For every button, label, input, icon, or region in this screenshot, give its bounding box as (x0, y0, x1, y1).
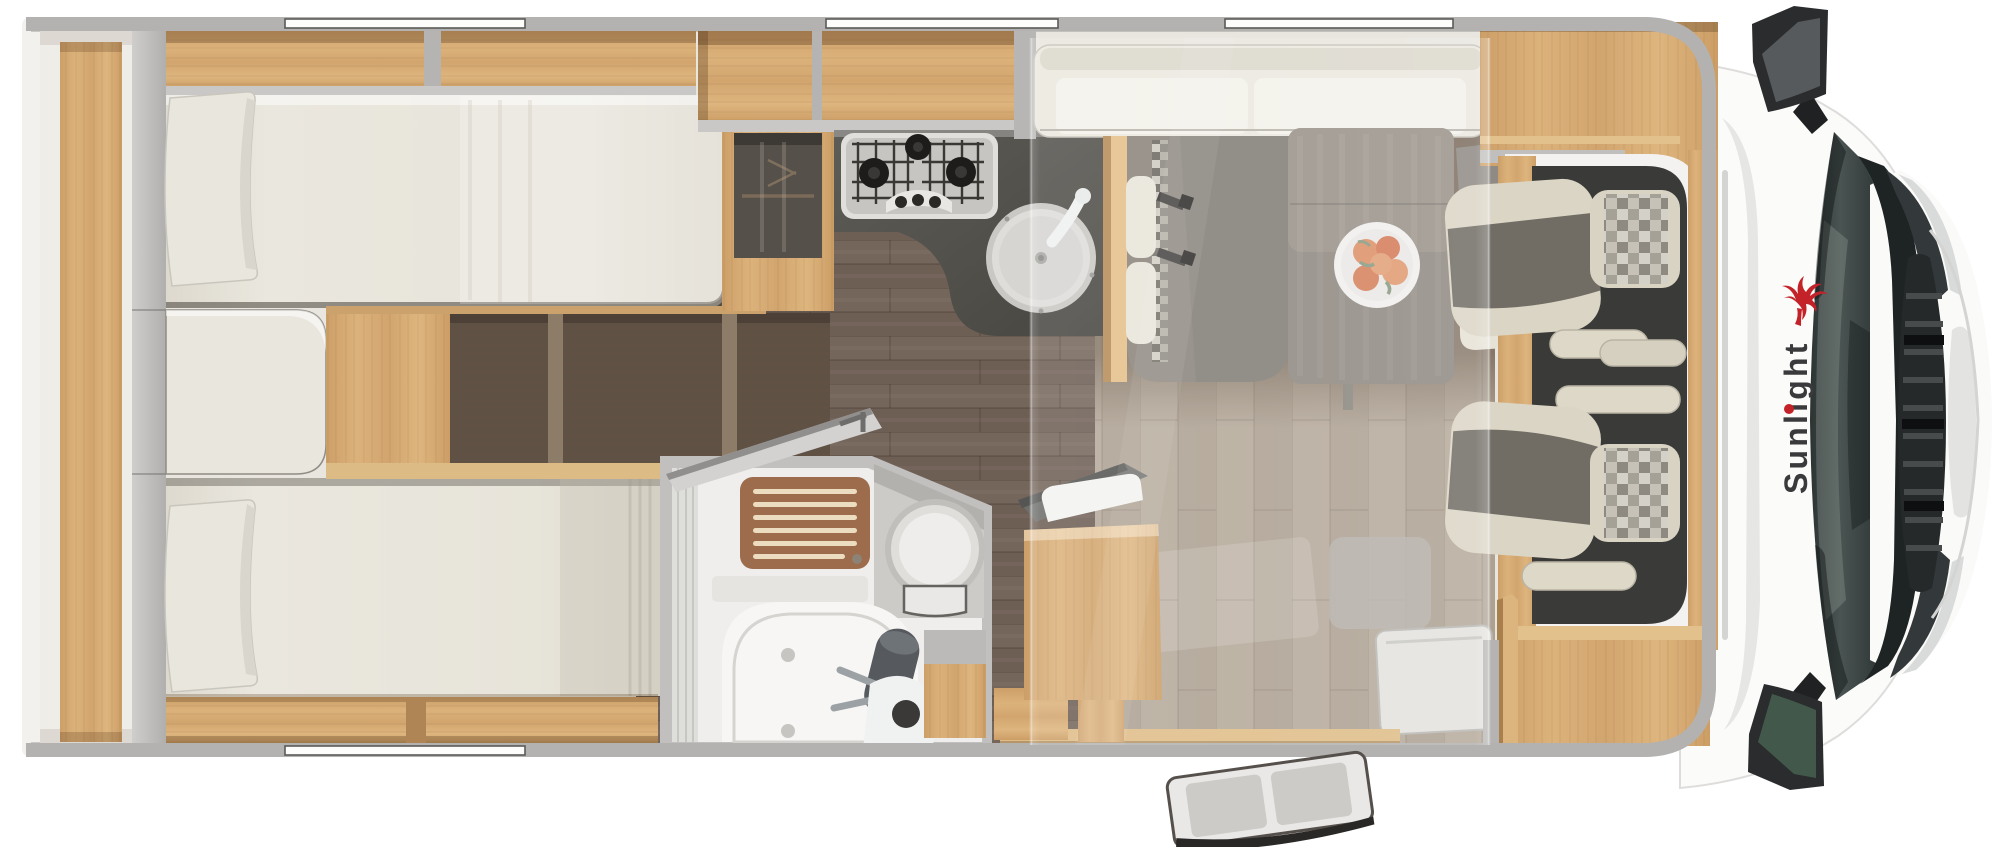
svg-text:Sunlıght: Sunlıght (1778, 340, 1814, 494)
